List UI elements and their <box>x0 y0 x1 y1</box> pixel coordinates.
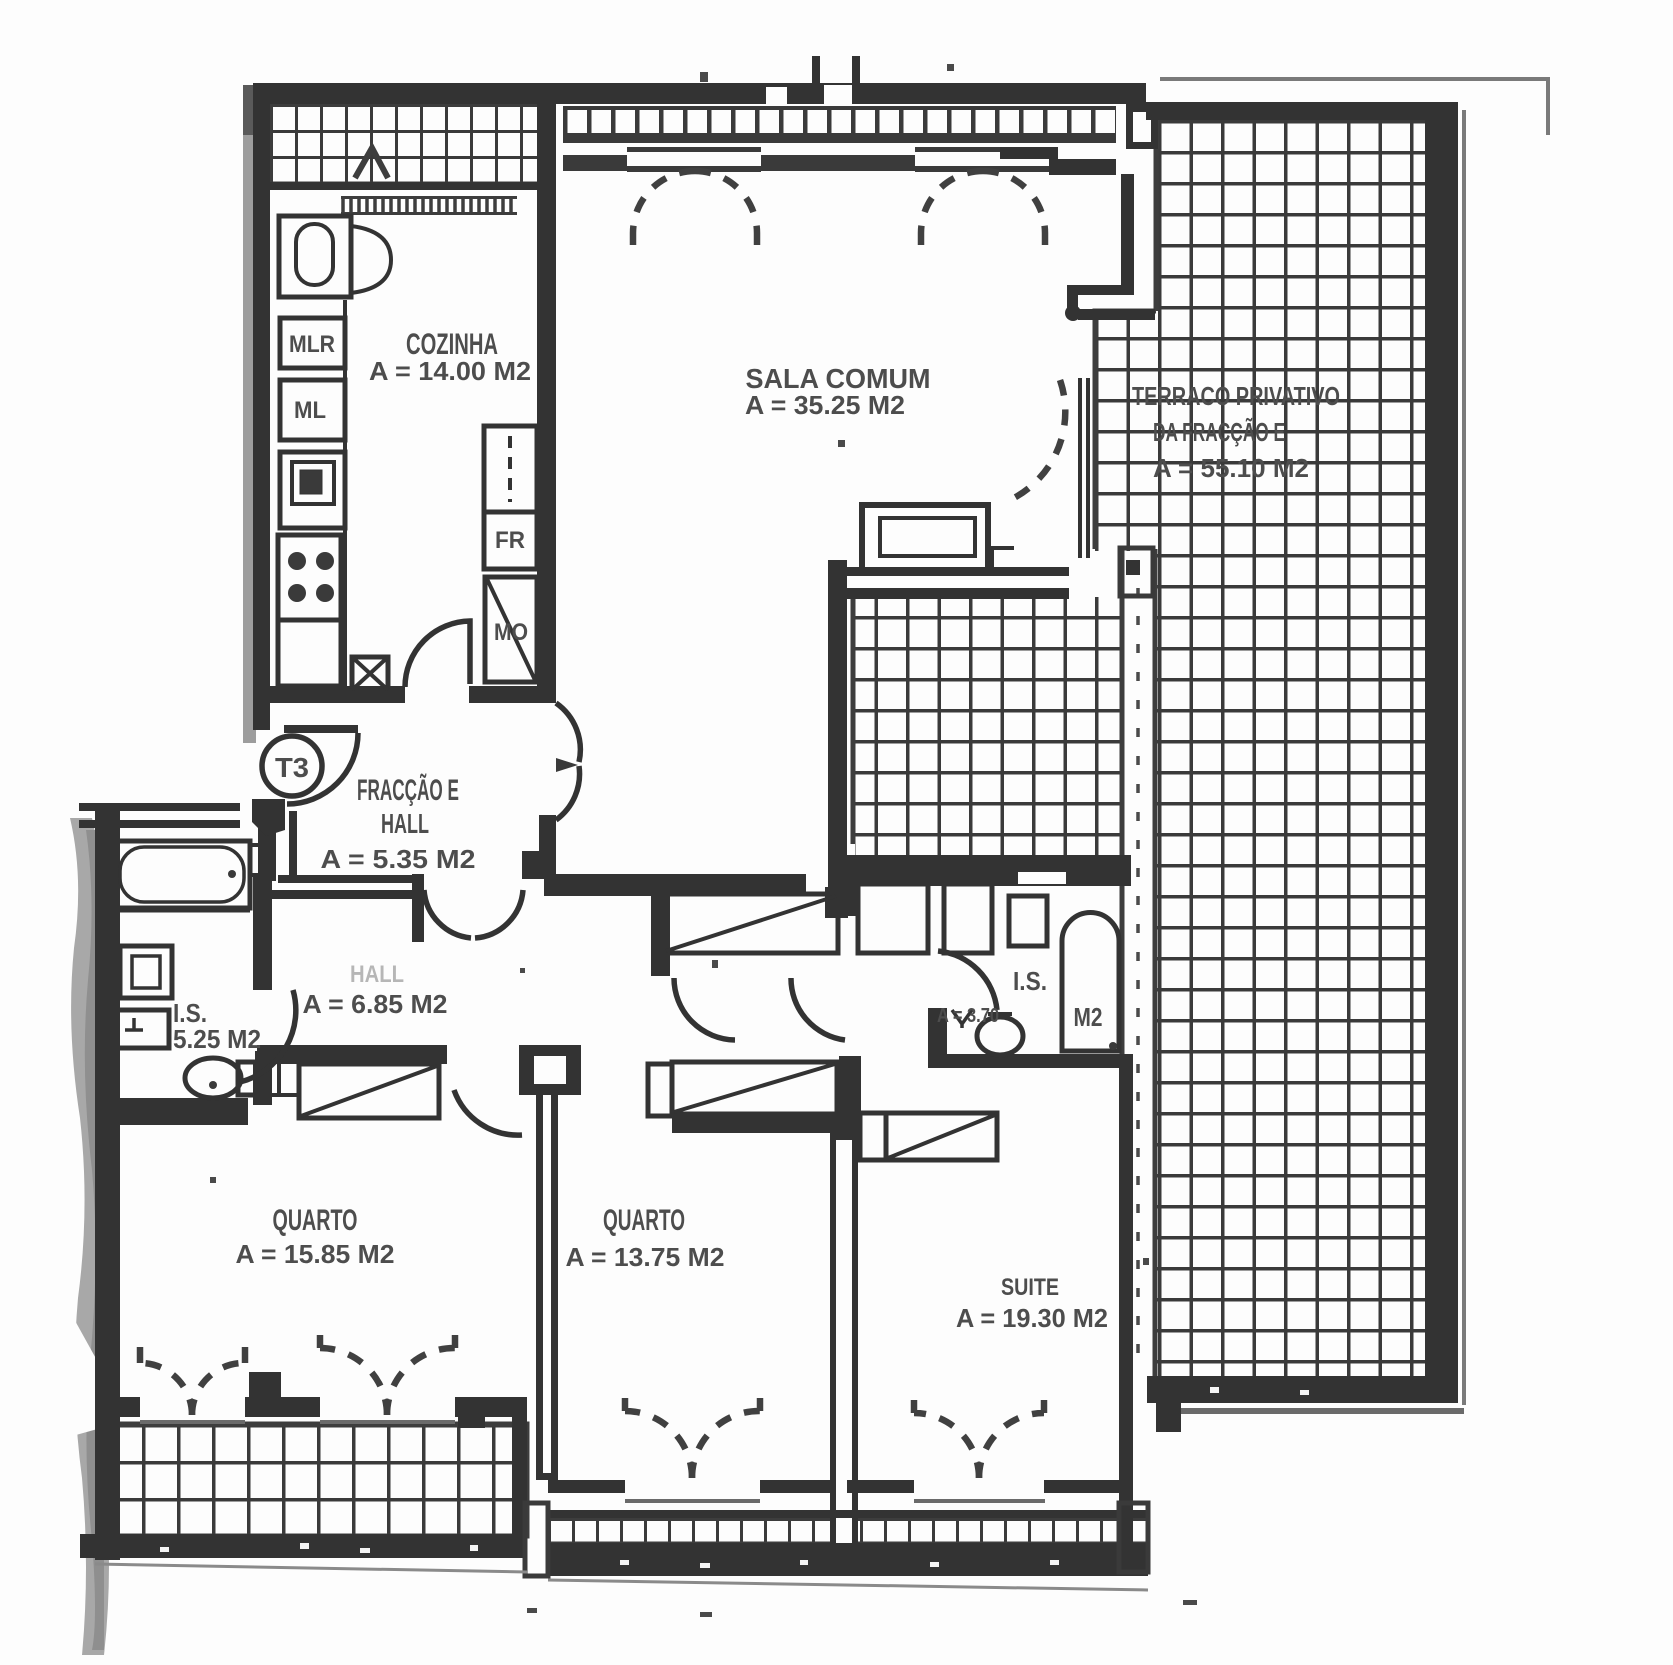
svg-text:A = 14.00 M2: A = 14.00 M2 <box>369 356 531 386</box>
svg-text:A = 13.75 M2: A = 13.75 M2 <box>566 1242 725 1272</box>
svg-text:DA FRACÇÃO E: DA FRACÇÃO E <box>1153 417 1285 447</box>
svg-text:QUARTO: QUARTO <box>273 1204 358 1237</box>
svg-text:I.S.: I.S. <box>1013 966 1047 996</box>
svg-text:MO: MO <box>494 619 528 646</box>
svg-text:A = 15.85 M2: A = 15.85 M2 <box>236 1239 395 1269</box>
svg-text:A = 6.85 M2: A = 6.85 M2 <box>303 989 448 1019</box>
svg-text:A = 5.35 M2: A = 5.35 M2 <box>321 844 476 874</box>
svg-text:SUITE: SUITE <box>1001 1274 1059 1301</box>
svg-text:HALL: HALL <box>381 808 429 839</box>
svg-text:5.25 M2: 5.25 M2 <box>173 1024 261 1054</box>
svg-text:A = 55.10 M2: A = 55.10 M2 <box>1153 453 1309 483</box>
svg-text:HALL: HALL <box>350 961 404 988</box>
svg-text:QUARTO: QUARTO <box>603 1204 685 1237</box>
svg-text:MLR: MLR <box>289 331 335 358</box>
svg-text:A = 35.25 M2: A = 35.25 M2 <box>745 390 905 420</box>
svg-text:A = 19.30 M2: A = 19.30 M2 <box>956 1303 1108 1333</box>
svg-text:T3: T3 <box>275 752 309 783</box>
svg-text:FR: FR <box>495 527 525 554</box>
svg-text:FRACÇÃO E: FRACÇÃO E <box>357 773 459 807</box>
svg-text:M2: M2 <box>1074 1002 1103 1032</box>
svg-text:A = 3.70: A = 3.70 <box>937 1005 999 1027</box>
svg-text:TERRACO PRIVATIVO: TERRACO PRIVATIVO <box>1132 381 1340 411</box>
svg-text:ML: ML <box>294 397 326 424</box>
